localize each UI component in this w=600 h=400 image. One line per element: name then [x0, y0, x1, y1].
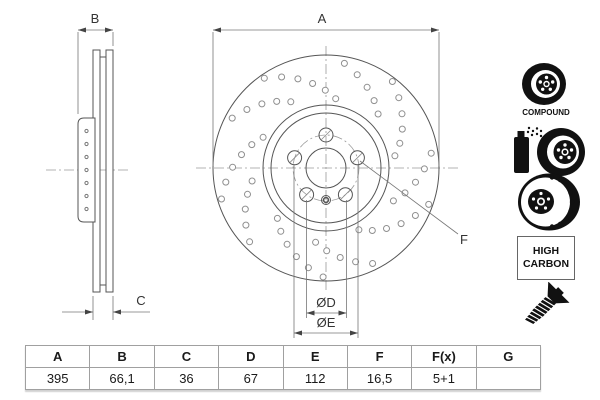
value-f: 16,5 [347, 368, 411, 390]
col-header-e: E [283, 346, 347, 368]
col-header-g: G [476, 346, 540, 368]
dim-d-label: ØD [316, 295, 336, 310]
col-header-fx: F(x) [412, 346, 476, 368]
outer-plate [106, 50, 113, 292]
value-a: 395 [26, 368, 90, 390]
drilled-disc-icon [513, 172, 587, 234]
front-view: A ØD ØE F [196, 11, 468, 338]
high-carbon-line2: CARBON [518, 258, 574, 271]
locating-pin-hole [322, 196, 331, 205]
countersunk-screw-icon [511, 282, 587, 342]
col-header-b: B [90, 346, 154, 368]
dim-b-label: B [91, 11, 100, 26]
compound-disc-icon [518, 60, 574, 108]
dim-e-label: ØE [317, 315, 336, 330]
compound-label: COMPOUND [512, 108, 580, 117]
high-carbon-line1: HIGH [518, 245, 574, 258]
side-view: B C [46, 11, 150, 320]
value-fx: 5+1 [412, 368, 476, 390]
value-c: 36 [154, 368, 218, 390]
value-g [476, 368, 540, 390]
spray-dots [527, 127, 542, 137]
dimension-c: C [62, 293, 150, 320]
value-d: 67 [219, 368, 283, 390]
dimensions-table: A B C D E F F(x) G 395 66,1 36 67 112 16… [25, 345, 541, 390]
table-value-row: 395 66,1 36 67 112 16,5 5+1 [26, 368, 541, 390]
table-header-row: A B C D E F F(x) G [26, 346, 541, 368]
dim-f-label: F [460, 232, 468, 247]
value-b: 66,1 [90, 368, 154, 390]
hub-hat-section [78, 118, 95, 222]
value-e: 112 [283, 368, 347, 390]
col-header-a: A [26, 346, 90, 368]
col-header-d: D [219, 346, 283, 368]
high-carbon-badge: HIGH CARBON [517, 236, 575, 280]
brake-disc-datasheet: B C [0, 0, 600, 400]
dim-a-label: A [318, 11, 327, 26]
col-header-f: F [347, 346, 411, 368]
dim-c-label: C [136, 293, 145, 308]
col-header-c: C [154, 346, 218, 368]
leader-f: F [360, 161, 468, 247]
coated-disc-spray-icon [508, 120, 588, 178]
